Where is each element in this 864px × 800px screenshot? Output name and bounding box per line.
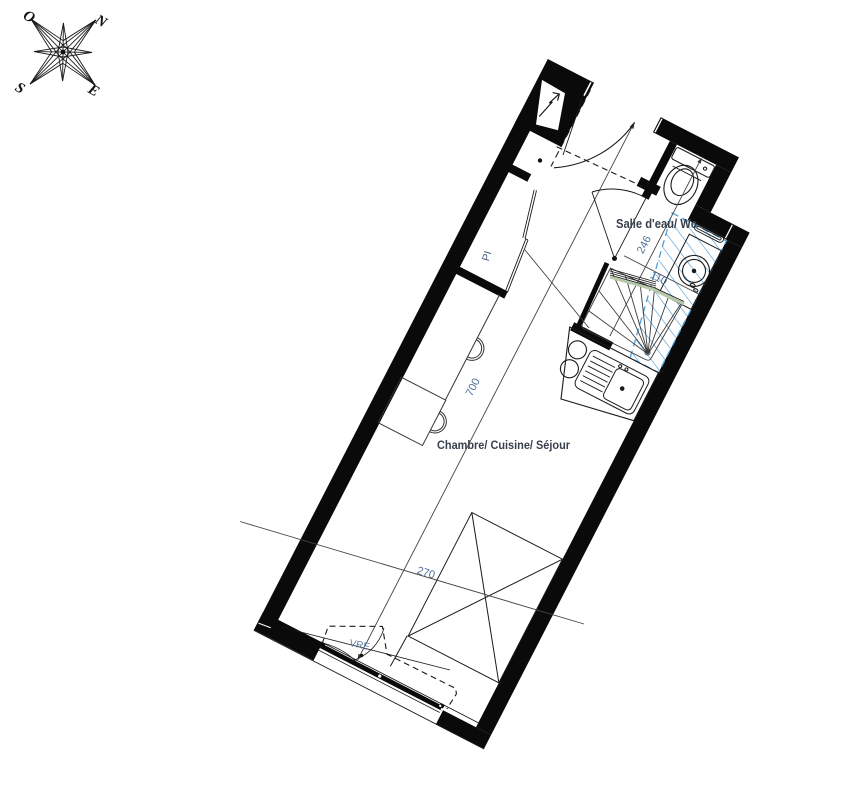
- svg-text:Chambre/ Cuisine/ Séjour: Chambre/ Cuisine/ Séjour: [437, 438, 570, 452]
- svg-text:Salle d'eau/ Wc: Salle d'eau/ Wc: [616, 217, 697, 231]
